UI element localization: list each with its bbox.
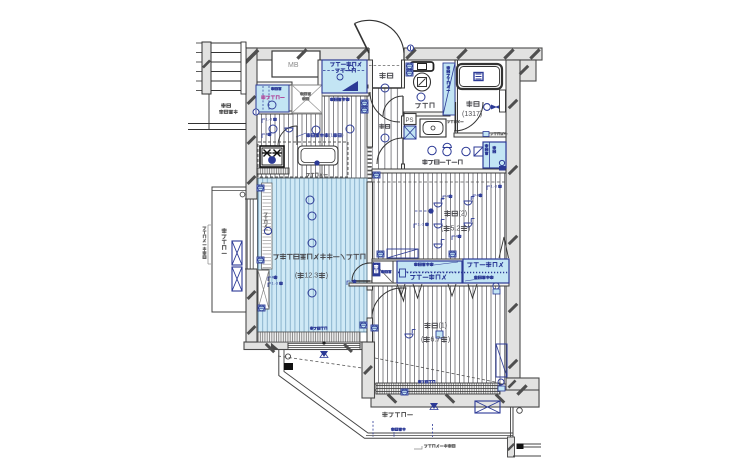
svg-text:(1: (1 [329, 133, 333, 138]
svg-text:4: 4 [447, 195, 449, 199]
svg-text:1.-3: 1.-3 [418, 223, 425, 227]
svg-text:(1): (1) [439, 323, 448, 330]
svg-text:): ) [326, 273, 328, 280]
svg-text:4: 4 [266, 133, 268, 137]
svg-text:(1317): (1317) [462, 111, 482, 118]
svg-text:6.7: 6.7 [431, 337, 441, 344]
svg-text:): ) [448, 337, 450, 344]
svg-text:5.2: 5.2 [451, 226, 461, 233]
svg-text:4: 4 [477, 194, 479, 198]
svg-text:(2): (2) [459, 211, 468, 218]
svg-text:1.-3: 1.-3 [272, 282, 279, 286]
svg-text:1.-3: 1.-3 [491, 185, 498, 189]
svg-text:MB: MB [288, 62, 299, 69]
svg-text:): ) [468, 226, 470, 233]
svg-text:PS: PS [406, 118, 414, 124]
svg-text:4: 4 [456, 235, 458, 239]
svg-text:12.3: 12.3 [305, 273, 319, 280]
svg-text:4: 4 [351, 280, 353, 284]
svg-text:4: 4 [272, 276, 274, 280]
svg-text:1.-3: 1.-3 [266, 118, 273, 122]
